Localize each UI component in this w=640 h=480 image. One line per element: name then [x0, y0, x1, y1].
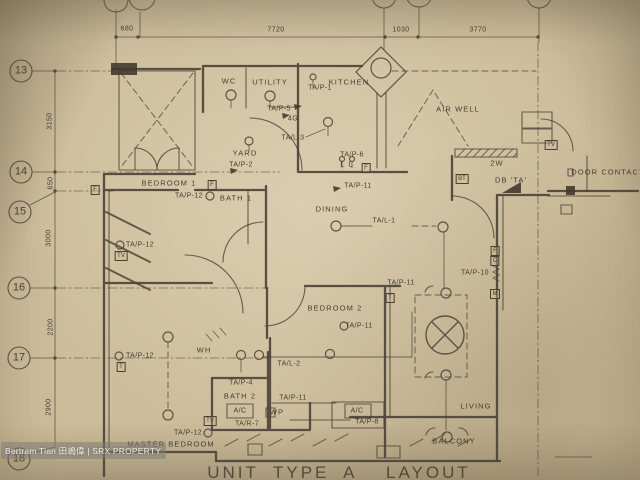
watermark: Bertram Tian 田嶋偉 | SRX PROPERTY: [1, 442, 166, 459]
electrical-a-c: A/C: [351, 408, 364, 415]
rooms-bath-2: BATH 2: [224, 392, 256, 400]
boxes-tv: TV: [545, 140, 558, 150]
electrical-ta-l-1: TA/L-1: [373, 218, 396, 225]
dims-top-3770: 3770: [469, 27, 486, 34]
boxes-tv: TV: [204, 416, 217, 426]
electrical-ta-p-2: TA/P-2: [229, 162, 253, 169]
boxes-tv: TV: [115, 251, 128, 261]
rooms-2w: 2W: [490, 159, 503, 167]
rooms-balcony: BALCONY: [432, 437, 476, 445]
electrical-4g: 4G: [288, 116, 298, 123]
electrical-ta-p-12: TA/P-12: [175, 193, 203, 200]
dims-left-650: 650: [48, 177, 55, 190]
electrical-ta-p-1: TA/P-1: [308, 85, 332, 92]
boxes-f: F: [91, 185, 100, 195]
electrical-ta-p-6: TA/P-6: [340, 152, 364, 159]
boxes-bt: BT: [456, 174, 469, 184]
rooms-db-ta: DB 'TA': [495, 176, 527, 184]
dims-left-2200: 2200: [48, 318, 55, 335]
electrical-ta-r-7: TA/R-7: [235, 421, 259, 428]
rooms-wc: WC: [222, 77, 237, 85]
dims-top-680: 680: [121, 26, 134, 33]
grid-numbers-14: 14: [15, 167, 27, 178]
rooms-l-l: L L: [340, 160, 353, 168]
electrical-ta-p-12: TA/P-12: [174, 430, 202, 437]
electrical-ta-p-11: TA/P-11: [279, 395, 306, 402]
dims-left-2900: 2900: [46, 398, 53, 415]
electrical-ta-l-3: TA/L-3: [282, 135, 305, 142]
dims-left-3150: 3150: [47, 112, 54, 129]
rooms-bath-1: BATH 1: [220, 194, 252, 202]
boxes-f: F: [491, 246, 500, 256]
rooms-door-contact: DOOR CONTACT: [571, 168, 640, 176]
rooms-yard: YARD: [233, 149, 258, 157]
electrical-ta-p-8: TA/P-8: [355, 419, 379, 426]
grid-numbers-15: 15: [14, 207, 26, 218]
grid-numbers-16: 16: [13, 283, 25, 294]
dims-left-3000: 3000: [46, 229, 53, 246]
electrical-ta-p-4: TA/P-4: [229, 380, 253, 387]
dims-top-1030: 1030: [392, 27, 409, 34]
electrical-a-c: A/C: [234, 408, 247, 415]
electrical-ta-p-11: TA/P-11: [344, 183, 371, 190]
boxes-f: F: [208, 180, 217, 190]
plan-title: UNIT TYPE A LAYOUT: [207, 463, 471, 480]
boxes-m: M: [490, 289, 500, 299]
boxes-f: F: [362, 163, 371, 173]
electrical-ta-p-11: TA/P-11: [387, 280, 414, 287]
electrical-ta-l-2: TA/L-2: [278, 361, 301, 368]
rooms-wh: WH: [197, 346, 212, 354]
electrical-ta-p-11: TA/P-11: [345, 323, 372, 330]
electrical-ta-p-12: TA/P-12: [126, 353, 154, 360]
electrical-ta-p-10: TA/P-10: [461, 270, 489, 277]
rooms-dining: DINING: [316, 205, 349, 213]
grid-numbers-17: 17: [13, 353, 25, 364]
boxes-c: C: [490, 256, 499, 266]
rooms-bedroom-1: BEDROOM 1: [142, 179, 197, 187]
rooms-kitchen: KITCHEN: [329, 78, 370, 86]
rooms-living: LIVING: [460, 402, 491, 410]
labels-layer: 1314151617186807720103037703150650300022…: [0, 0, 640, 480]
rooms-wp: WP: [270, 408, 284, 416]
grid-numbers-13: 13: [15, 66, 27, 77]
boxes-t: T: [386, 293, 395, 303]
dims-top-7720: 7720: [267, 27, 284, 34]
boxes-t: T: [117, 362, 126, 372]
rooms-bedroom-2: BEDROOM 2: [308, 304, 363, 312]
floorplan-photo: 1314151617186807720103037703150650300022…: [0, 0, 640, 480]
electrical-ta-p-12: TA/P-12: [126, 242, 154, 249]
electrical-ta-p-5: TA/P-5: [267, 106, 291, 113]
rooms-utility: UTILITY: [252, 78, 288, 86]
rooms-air-well: AIR WELL: [436, 105, 480, 113]
